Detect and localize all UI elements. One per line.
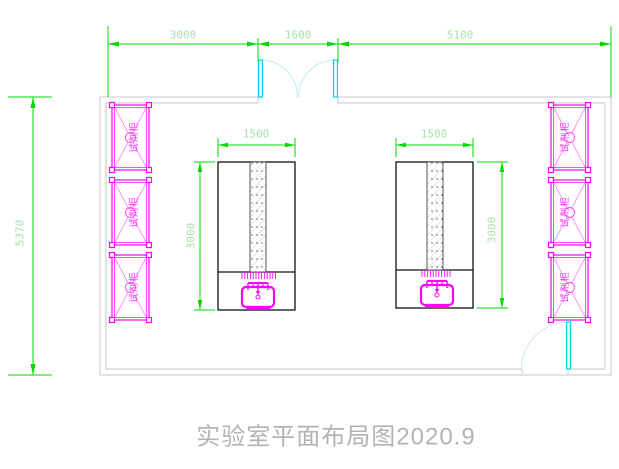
- top-dimension: [108, 26, 611, 97]
- bench1-depth-dimension: [194, 162, 215, 310]
- door-swing-arc: [261, 60, 298, 97]
- bench2-width-dimension: [396, 138, 473, 157]
- double-entry-door: [259, 60, 338, 97]
- bench1-width-dimension: [218, 138, 295, 157]
- single-door-bottom-right: [522, 322, 571, 369]
- cabinet-label: 试剂柜: [126, 196, 140, 228]
- drawing-title: 实验室平面布局图2020.9: [196, 417, 475, 452]
- door-leaf: [259, 60, 263, 97]
- cad-floor-plan: 3000 1600 5100 5370 1500 3000 1500 3000 …: [0, 0, 619, 469]
- bench2-depth-dimension: [477, 162, 508, 308]
- lab-bench-2: [396, 162, 473, 308]
- cabinet-label: 试剂柜: [557, 196, 571, 228]
- door-leaf: [334, 60, 338, 97]
- door-swing-arc: [522, 322, 569, 369]
- cabinet-label: 试剂柜: [126, 271, 140, 303]
- door-swing-arc: [299, 60, 336, 97]
- room-walls: [100, 97, 611, 375]
- lab-bench-1: [218, 162, 295, 310]
- door-leaf: [567, 322, 571, 369]
- overall-height-dimension: [8, 97, 52, 375]
- cabinet-label: 试剂柜: [557, 121, 571, 153]
- bench-center-strip-dots: [427, 162, 443, 270]
- floor-plan-linework: [0, 0, 619, 469]
- cabinet-label: 试剂柜: [126, 121, 140, 153]
- bench-center-strip-dots: [250, 162, 266, 272]
- cabinet-label: 试剂柜: [557, 271, 571, 303]
